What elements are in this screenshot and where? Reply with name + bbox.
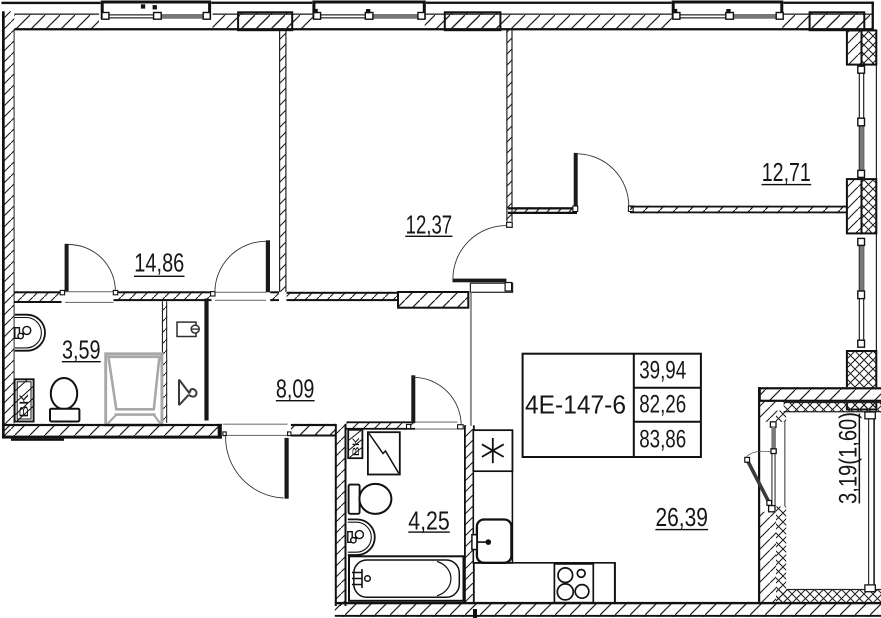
svg-text:ВК: ВК: [351, 437, 362, 457]
svg-text:26,39: 26,39: [655, 502, 708, 532]
svg-text:4Е-147-6: 4Е-147-6: [525, 390, 626, 420]
svg-text:83,86: 83,86: [639, 425, 686, 453]
svg-text:82,26: 82,26: [639, 391, 686, 419]
svg-text:ВК: ВК: [19, 394, 31, 418]
svg-text:3,19(1,60): 3,19(1,60): [835, 412, 863, 504]
svg-text:14,86: 14,86: [134, 247, 184, 277]
svg-text:12,71: 12,71: [762, 157, 811, 187]
svg-text:4,25: 4,25: [408, 505, 450, 535]
svg-text:3,59: 3,59: [62, 334, 101, 364]
svg-text:39,94: 39,94: [639, 357, 686, 385]
svg-text:8,09: 8,09: [276, 373, 315, 403]
svg-text:12,37: 12,37: [406, 209, 453, 239]
